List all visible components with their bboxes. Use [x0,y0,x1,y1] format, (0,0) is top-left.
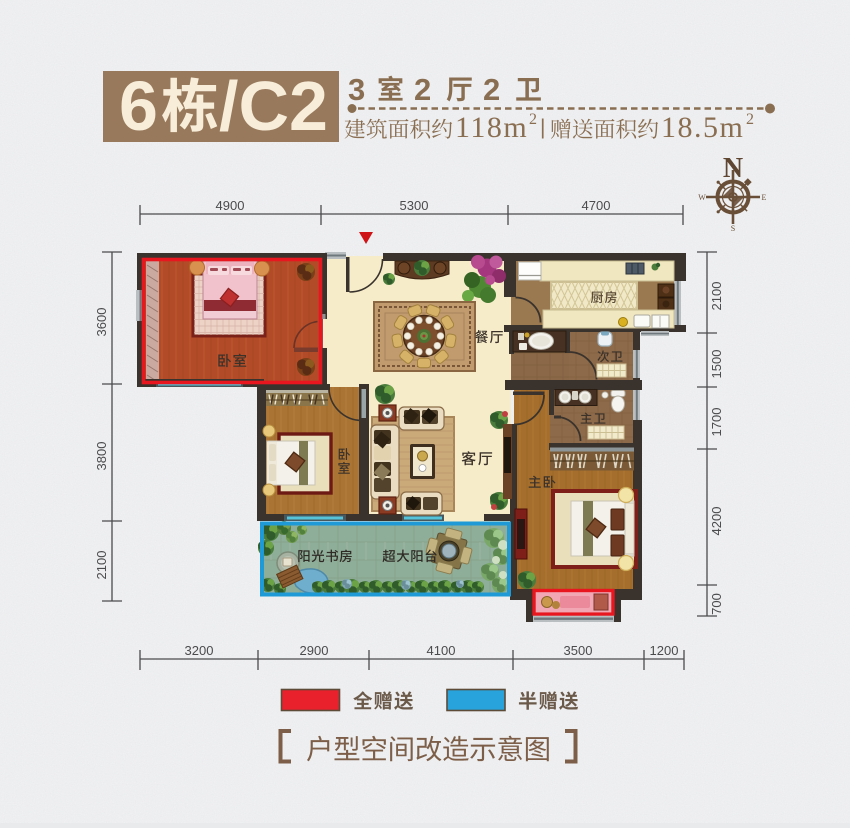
svg-text:5300: 5300 [400,198,429,213]
svg-text:3600: 3600 [94,308,109,337]
svg-text:2: 2 [483,72,500,107]
svg-text:4900: 4900 [216,198,245,213]
svg-text:2: 2 [529,111,537,128]
svg-text:2100: 2100 [709,282,724,311]
svg-text:18.5m: 18.5m [661,111,744,144]
svg-text:W: W [698,193,706,202]
svg-text:2100: 2100 [94,551,109,580]
svg-text:3: 3 [348,72,365,107]
svg-text:4200: 4200 [709,507,724,536]
svg-text:118m: 118m [455,111,528,144]
svg-text:2: 2 [414,72,431,107]
svg-text:4100: 4100 [427,643,456,658]
svg-text:S: S [731,224,735,233]
svg-text:3800: 3800 [94,442,109,471]
svg-text:1700: 1700 [709,408,724,437]
svg-text:3500: 3500 [564,643,593,658]
svg-text:700: 700 [709,593,724,615]
svg-text:|: | [540,116,545,139]
svg-text:3200: 3200 [185,643,214,658]
svg-text:E: E [762,193,767,202]
svg-text:/C2: /C2 [219,67,328,145]
svg-text:1200: 1200 [650,643,679,658]
svg-text:2: 2 [746,111,754,128]
svg-text:6: 6 [119,67,158,145]
svg-text:1500: 1500 [709,350,724,379]
svg-text:2900: 2900 [300,643,329,658]
svg-text:4700: 4700 [582,198,611,213]
